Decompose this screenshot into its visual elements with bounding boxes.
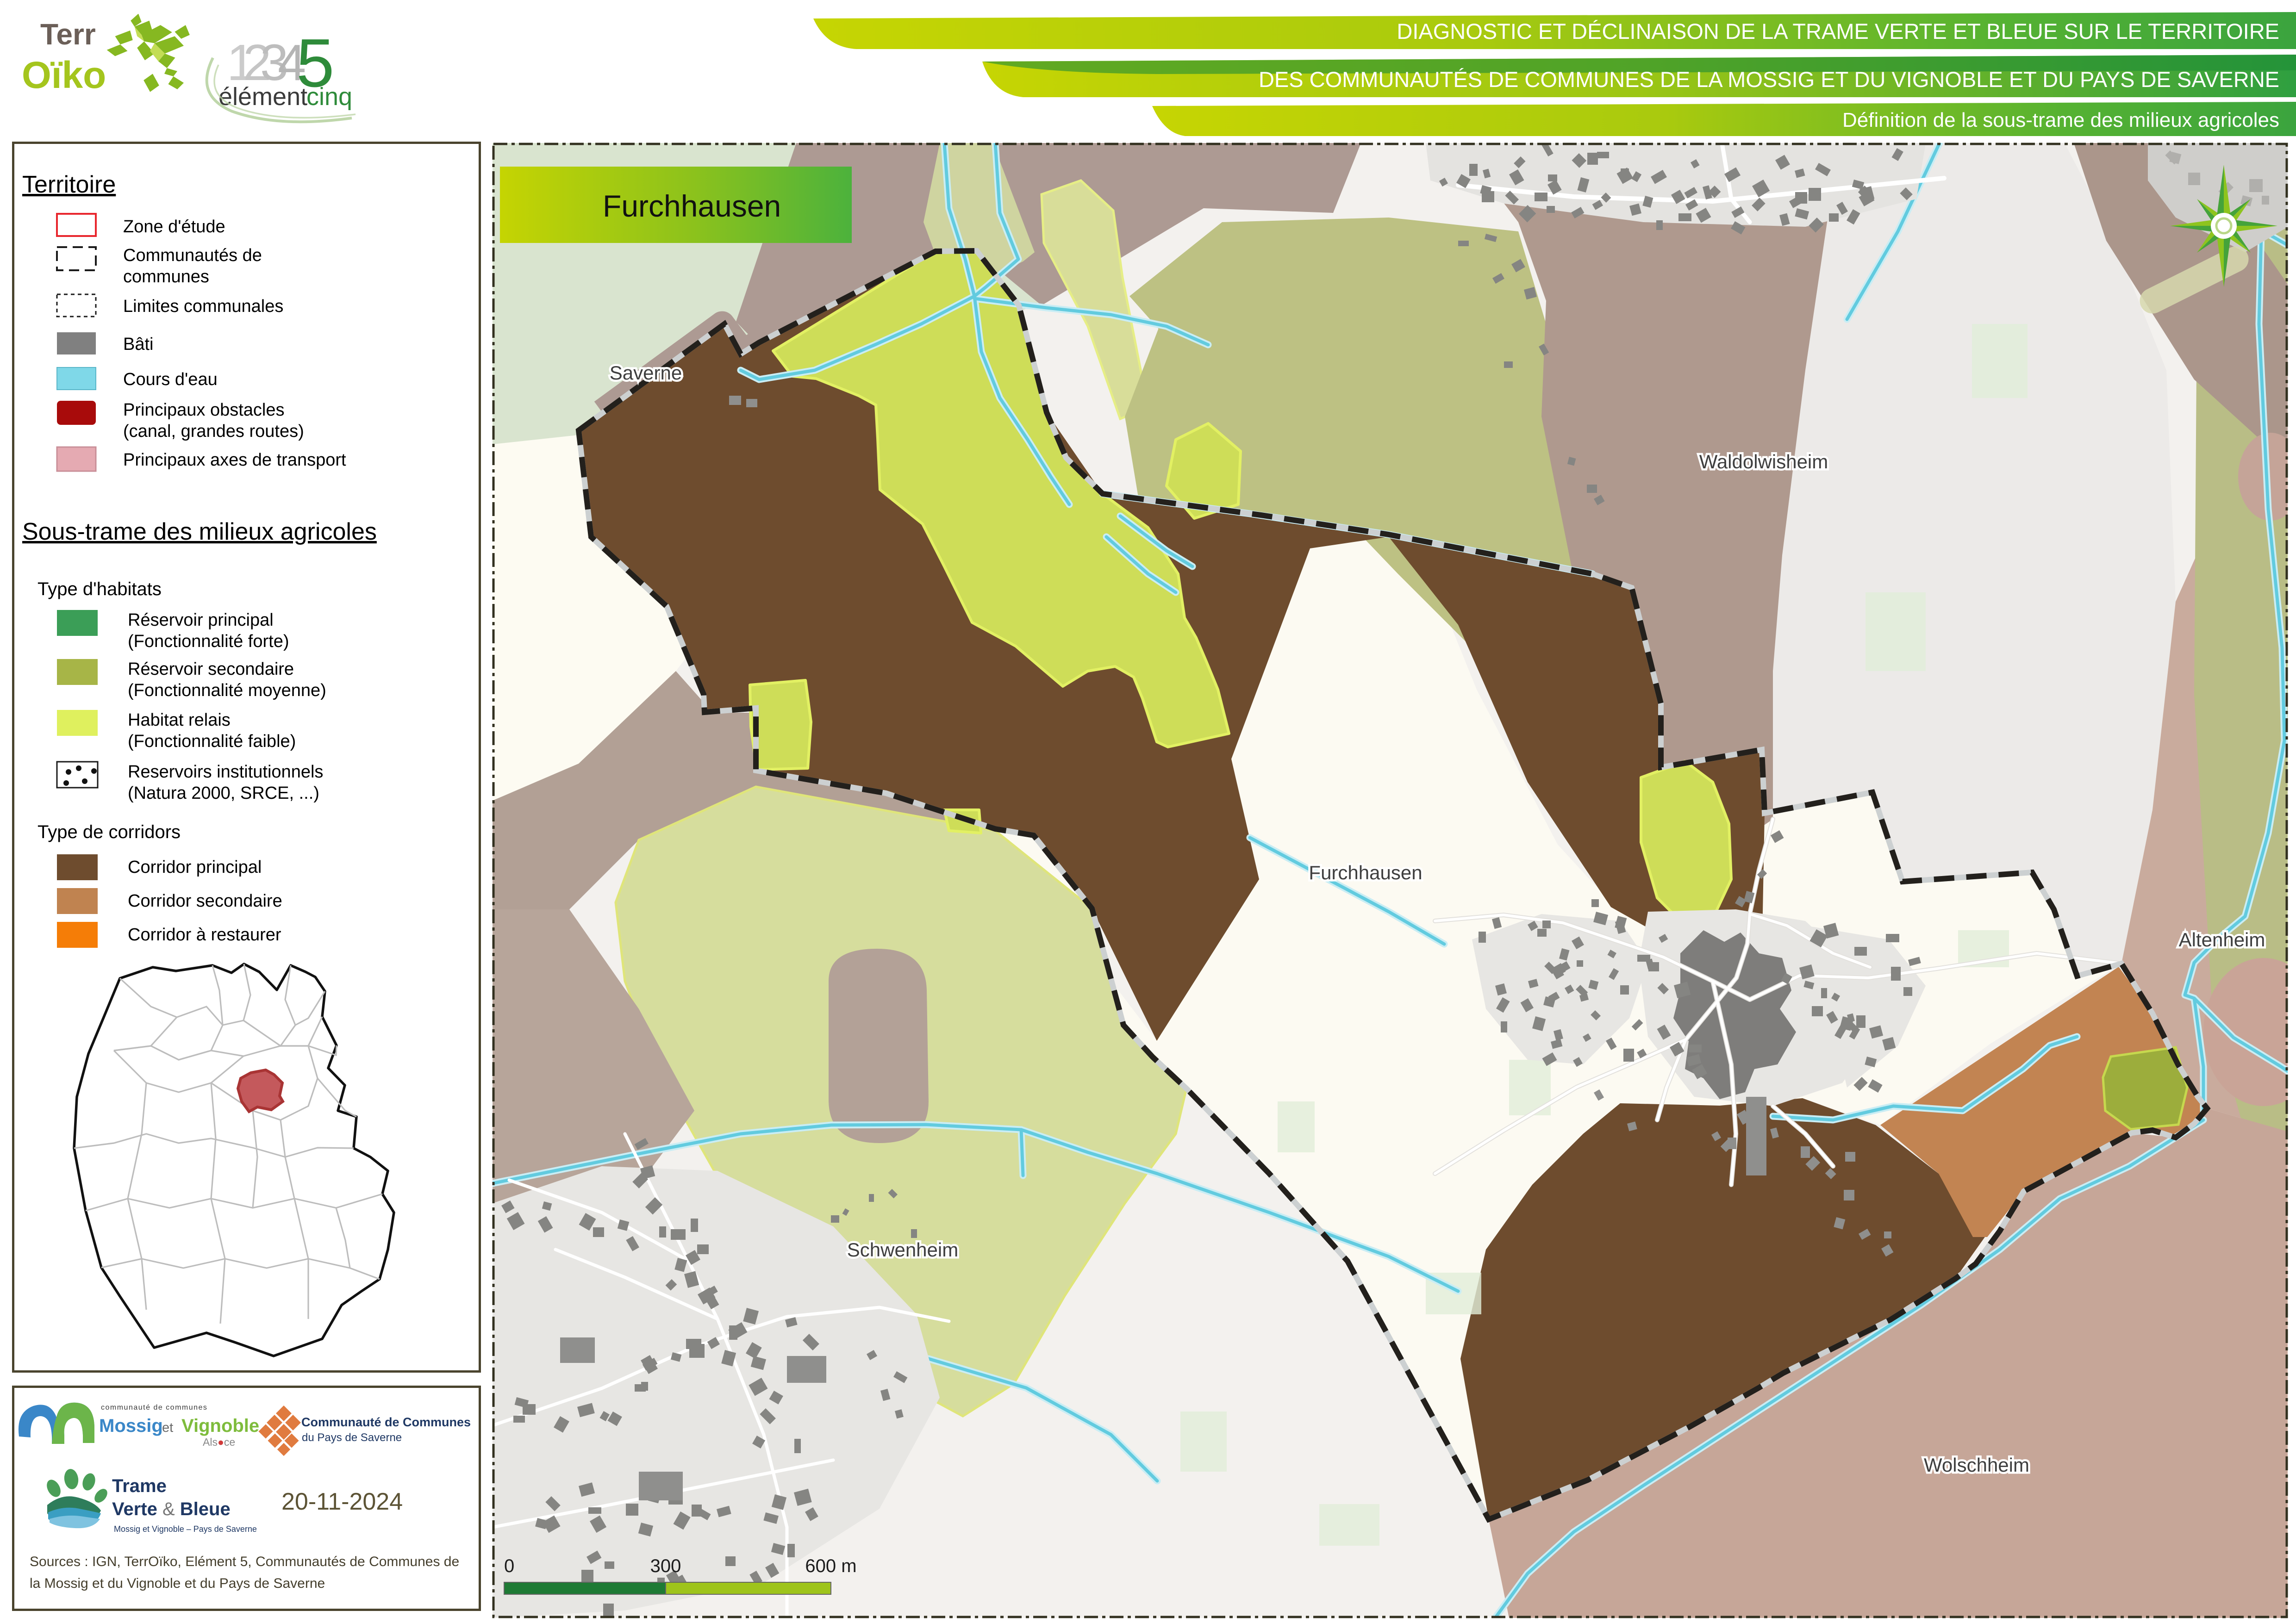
- svg-text:Furchhausen: Furchhausen: [603, 189, 781, 223]
- svg-text:600 m: 600 m: [805, 1556, 856, 1576]
- svg-text:Altenheim: Altenheim: [2179, 929, 2265, 951]
- svg-text:Schwenheim: Schwenheim: [847, 1239, 958, 1261]
- svg-text:Wolschheim: Wolschheim: [1924, 1454, 2029, 1476]
- svg-text:Waldolwisheim: Waldolwisheim: [1699, 451, 1828, 473]
- svg-text:0: 0: [504, 1556, 514, 1576]
- svg-text:300: 300: [650, 1556, 681, 1576]
- svg-text:Saverne: Saverne: [610, 362, 682, 384]
- svg-text:Furchhausen: Furchhausen: [1309, 862, 1422, 883]
